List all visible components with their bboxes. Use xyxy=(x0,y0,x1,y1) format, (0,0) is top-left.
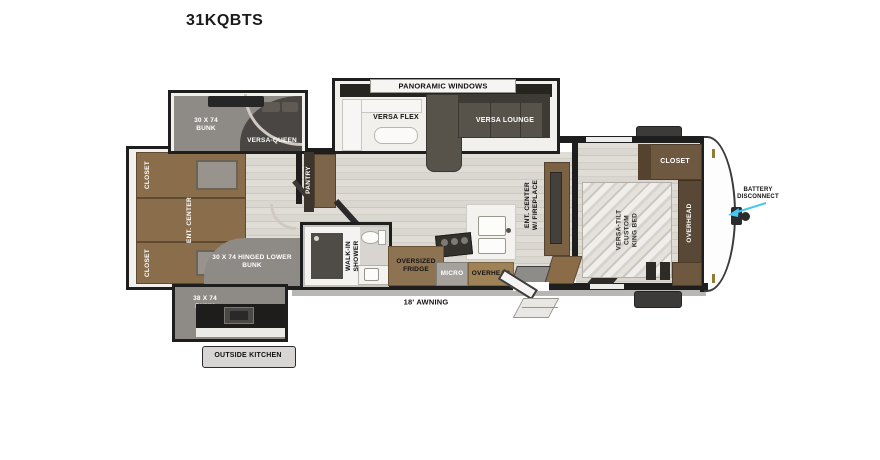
entry-steps xyxy=(513,298,560,318)
versa-flex-label: VERSA FLEX xyxy=(373,114,419,122)
rear-closet-top-label: CLOSET xyxy=(144,161,152,189)
king-bed-label: VERSA-TILT CUSTOM KING BED xyxy=(615,209,638,251)
versa-lounge-back xyxy=(458,94,550,103)
vanity-sink xyxy=(364,268,379,281)
stove-burner3 xyxy=(461,237,468,244)
roof-box-bottom xyxy=(634,291,682,308)
bed-bench2 xyxy=(660,262,670,280)
sink-faucet xyxy=(506,228,511,233)
upper-bunk-label: 30 X 74 BUNK xyxy=(185,117,227,133)
shower-head xyxy=(314,236,319,241)
ent-center-fireplace-label: ENT. CENTER W/ FIREPLACE xyxy=(524,179,540,231)
rear-closet-bottom-label: CLOSET xyxy=(144,249,152,277)
versa-lounge-arm xyxy=(542,94,550,138)
lower-bunk-label: 30 X 74 HINGED LOWER BUNK xyxy=(209,254,295,270)
floorplan-31kqbts: 31KQBTS 18' AWNING BATTERY DISCONNECT CL… xyxy=(0,0,880,460)
panoramic-windows-label: PANORAMIC WINDOWS xyxy=(398,82,487,91)
cap-hinge-top xyxy=(712,149,715,158)
outside-kitchen-sink-basin xyxy=(230,311,248,320)
sink-basin-bottom xyxy=(478,238,506,254)
rear-ent-center-label: ENT. CENTER xyxy=(186,197,194,243)
battery-disconnect-arrow xyxy=(724,198,770,220)
versa-flex-bench-left xyxy=(342,99,362,151)
page-title: 31KQBTS xyxy=(186,12,263,30)
bedroom-bottom-window xyxy=(590,284,624,289)
fridge-label: OVERSIZED FRIDGE xyxy=(389,258,443,274)
bedroom-wall xyxy=(572,142,578,256)
bed-bench1 xyxy=(646,262,656,280)
outside-kitchen-label: OUTSIDE KITCHEN xyxy=(214,352,281,360)
stove-burner2 xyxy=(451,238,458,245)
toilet-tank xyxy=(378,230,386,245)
pantry-label: PANTRY xyxy=(305,166,313,194)
pantry-cabinet xyxy=(314,154,336,208)
ent-center-tv xyxy=(550,172,562,244)
outside-kitchen-ledge xyxy=(196,328,285,337)
bedroom-closet-side xyxy=(638,144,651,180)
bedroom-corner-cabinet xyxy=(672,262,702,286)
awning-label: 18' AWNING xyxy=(404,298,449,307)
micro-label: MICRO xyxy=(441,270,464,278)
bunkroom-wall xyxy=(296,152,302,204)
entry-step-line xyxy=(522,307,559,308)
bedroom-closet-label: CLOSET xyxy=(660,158,690,166)
sink-basin-top xyxy=(478,216,506,236)
versa-queen-label: VERSA-QUEEN xyxy=(247,137,297,145)
bunk-roof-vent xyxy=(208,96,264,107)
versa-lounge-chaise xyxy=(426,94,462,172)
versa-lounge-label: VERSA LOUNGE xyxy=(476,117,534,125)
bedroom-top-window xyxy=(586,137,632,142)
bedroom-overhead-label: OVERHEAD xyxy=(686,203,694,242)
rear-closet-top-mirror xyxy=(196,160,238,190)
versa-flex-table xyxy=(374,127,418,144)
cap-hinge-bottom xyxy=(712,274,715,283)
stove-burner1 xyxy=(441,239,448,246)
